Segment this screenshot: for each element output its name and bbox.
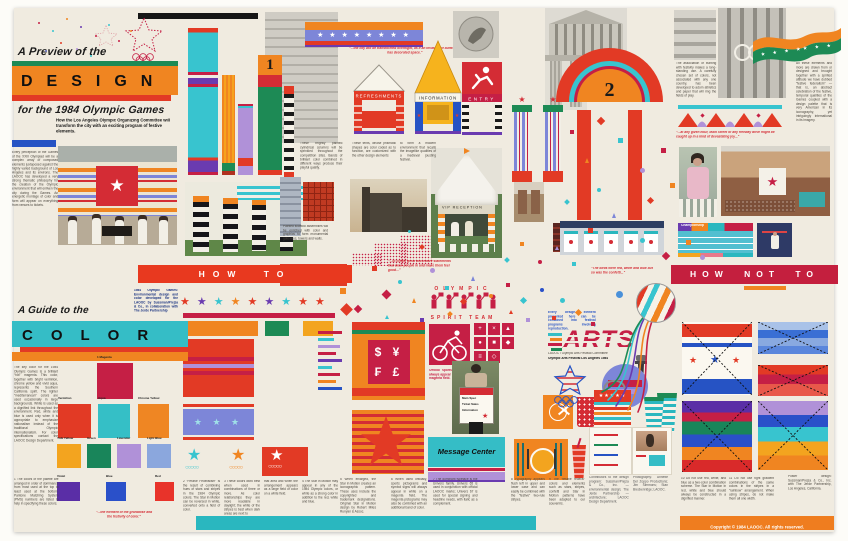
tagline: How the Los Angeles Olympic Organizing C…: [56, 118, 180, 135]
swatch-label: Lavender: [117, 437, 129, 440]
column-star-icon: ★: [543, 95, 563, 104]
sport-pictogram-tile: ●: [474, 337, 486, 349]
guest: [451, 222, 459, 236]
photo-discus-thrower: [453, 11, 499, 58]
row-star-icon: ★: [315, 296, 332, 308]
arch-number: 2: [605, 79, 615, 101]
pins-card: [589, 427, 632, 475]
palette-swatch: Yolk Yellow: [57, 437, 81, 468]
sign-header: [460, 388, 493, 395]
mini-bar: [318, 373, 340, 376]
poster-page: A Preview of the DESIGN for the 1984 Oly…: [0, 0, 848, 541]
how-to-banner: HOW TO: [138, 265, 352, 283]
column-green-shaft: [258, 87, 282, 170]
star-rings-sketch-icon: [546, 364, 594, 408]
target-dot: [589, 240, 593, 244]
swatch-color-block: [138, 404, 169, 438]
girl-dress: [687, 167, 709, 199]
target-dot: [649, 240, 653, 244]
star-row: ★★★★★★★★★: [180, 295, 345, 311]
row-star-icon: ★: [264, 296, 281, 308]
knife-icon: [554, 449, 556, 469]
photo-sign-holder: Main Spec Ticket Sales Information ★: [452, 361, 499, 434]
caption-typeface: 7 The dominant typeface is the Univers f…: [433, 478, 478, 506]
speed-bar: [551, 348, 562, 351]
white-chairs: [439, 244, 495, 252]
how-not-to-label: HOW NOT TO: [671, 265, 838, 284]
color-title: COLOR: [12, 321, 188, 344]
swatch-label: Light Blue: [147, 437, 159, 440]
band-field: ★ ★ ★: [183, 409, 254, 435]
row-star-icon: ★: [214, 296, 231, 308]
striped-field-example: [183, 339, 254, 397]
sign-orange-base: [352, 396, 425, 400]
how-not-to-underline: [744, 286, 786, 290]
message-center-sign: Message Center: [428, 437, 505, 481]
column-top-stripe-aqua: [238, 106, 253, 108]
spirit-bottom-label: SPIRIT TEAM: [424, 315, 502, 321]
swatch-label: Aqua: [98, 397, 114, 400]
caption-dont-red-white-blue: 10 Do not use red, white, and blue as a …: [681, 477, 726, 501]
column-base: [543, 171, 563, 182]
photo-sky: [58, 146, 177, 162]
swatch-color-block: [98, 404, 130, 438]
sign-line: Information: [462, 409, 478, 412]
star-column: ★: [543, 98, 563, 182]
lane-line: [678, 237, 753, 238]
photo-band-performance: ★: [58, 146, 177, 245]
subtitle: for the 1984 Olympic Games: [17, 104, 165, 116]
championship-label: Championship: [681, 224, 704, 227]
color-block-green: [265, 321, 289, 336]
entry-sign-label: ENTRY: [468, 96, 496, 101]
palette-swatch: Lavender: [117, 437, 141, 468]
post-star-icon: ★: [417, 113, 422, 119]
lifter-head: [773, 232, 777, 236]
mini-bar: [318, 352, 336, 355]
sport-pictogram-tile: +: [474, 323, 486, 335]
palette-swatch: Blue: [106, 475, 126, 501]
tent-column: [438, 214, 445, 244]
caption-star-colors: 4 The Star in Motion may appear in any o…: [302, 480, 338, 504]
intro-column: Every perception of the Games of the XXI…: [12, 151, 58, 208]
banner-orange-stripe: [305, 22, 423, 30]
crossout-x-icon: [682, 322, 752, 395]
refreshments-sign-label: REFRESHMENTS: [356, 94, 403, 99]
stars-in-motion-pattern: [352, 410, 424, 474]
column-shaft: [514, 112, 530, 171]
variant-star-icon: ★: [187, 445, 201, 465]
ruin-column: [518, 190, 527, 214]
person-torso: [465, 373, 487, 388]
quote-grandiose: “...the element of the grandiose and the…: [96, 511, 152, 520]
festive-column-aqua: [188, 28, 218, 175]
palette-swatch: Chrome Yellow: [138, 397, 169, 438]
sign-line: Main Spec: [462, 397, 476, 400]
festive-column-orange: [222, 75, 235, 175]
message-center-field: Message Center: [428, 437, 505, 467]
crossout-x-icon: [758, 401, 828, 470]
building-silhouette: [370, 193, 402, 232]
column-red-band: [238, 158, 253, 166]
vip-banner: VIP RECEPTION: [438, 205, 495, 214]
variant-star-icon: ★: [231, 445, 245, 465]
photo-venue-hills: ★: [721, 146, 830, 216]
speed-bar: [548, 333, 562, 336]
target-tent: [644, 231, 658, 252]
preview-eyebrow: A Preview of the: [17, 46, 107, 58]
arch-left-leg: [577, 110, 591, 220]
cycling-pictogram: [429, 324, 470, 365]
row-star-icon: ★: [248, 296, 265, 308]
column-capital: [543, 105, 563, 112]
sign-star-icon: ★: [482, 412, 488, 420]
photo-weightlifter: [757, 223, 792, 257]
sport-pictogram-tile: ×: [488, 323, 500, 335]
fork-icon: [527, 449, 529, 469]
information-sign-label: INFORMATION: [419, 96, 457, 101]
color-banner: COLOR: [12, 321, 188, 347]
star-variant-red-field: ★ ○○○○○: [262, 447, 308, 476]
guest: [465, 221, 473, 236]
swatch-label: Violet: [57, 475, 69, 478]
photo-swimming-championship: Championship: [678, 223, 753, 257]
bottom-cyan-bar: [196, 516, 536, 530]
band-stars: ★ ★ ★: [194, 417, 243, 427]
sign-magenta-rule: [428, 468, 505, 471]
photo-vip-tent: VIP RECEPTION: [431, 148, 502, 258]
column-base: [512, 171, 532, 182]
swatch-label: Green: [87, 437, 99, 440]
column-green-band: [222, 163, 235, 171]
swatch-label: 1 Magenta: [97, 356, 115, 359]
tent-column: [488, 214, 495, 244]
field-stripe: [183, 364, 254, 368]
mini-bar: [318, 359, 342, 362]
brochure-photo: [632, 427, 672, 475]
palette-swatch: 1 Magenta: [97, 356, 133, 399]
kiosk-refreshments: REFRESHMENTS: [352, 63, 406, 137]
swatch-label: Red: [155, 475, 165, 478]
target-dot: [569, 240, 573, 244]
swatch-color-block: [147, 444, 171, 468]
mini-bar: [318, 366, 332, 369]
girl-face: [693, 158, 702, 166]
dont-example-rainbow-dark: [682, 401, 752, 472]
how-to-label: HOW TO: [138, 265, 352, 283]
caption-palette-order: 1 The colors of the palette are arranged…: [14, 478, 59, 506]
dont-example-reds: [758, 365, 828, 396]
speed-bar: [550, 338, 562, 341]
star-variant-orange: ★ ○○○○○: [227, 447, 261, 476]
dont-example-rainbow-light: [758, 401, 828, 470]
credits-photography: Photography: Annette Del Zoppo Productio…: [633, 476, 668, 492]
brochure-figure: [646, 434, 654, 447]
ruin-column: [531, 190, 540, 214]
dashed-column-shaft: [284, 94, 294, 172]
caption-pictogram-use: 6 When used officially, sports pictogram…: [391, 478, 427, 511]
tent-flag: [464, 148, 470, 154]
caption-dont-rainbow: 11 Do not use tight gradient combination…: [729, 477, 774, 501]
mini-bar: [318, 338, 334, 341]
brochure-red-rule: [636, 455, 646, 457]
photo-city-street: [674, 10, 716, 60]
design-title: DESIGN: [12, 66, 178, 91]
bw-striped-column: [193, 196, 209, 252]
kiosk-entry: ENTRY: [461, 61, 503, 138]
variant-rings-icon: ○○○○○: [185, 465, 198, 471]
crossout-x-icon: [758, 322, 828, 354]
variant-rings-icon: ○○○○○: [229, 465, 242, 471]
target-tent: [564, 231, 578, 252]
target-tent: [624, 231, 638, 252]
banner-star-band: ★ ★ ★ ★ ★ ★ ★ ★: [305, 30, 423, 41]
copyright-text: Copyright © 1984 LAOOC. All rights reser…: [710, 523, 804, 533]
blue-bar: [12, 140, 56, 147]
building-tower: [362, 187, 370, 232]
caption-souvenirs: 9 The “festive federal” colors and eleme…: [549, 478, 585, 506]
swatch-color-block: [97, 363, 133, 399]
sport-pictogram-tile: ◆: [502, 337, 514, 349]
target-dot: [609, 240, 613, 244]
caption-festive-federalism: All these elements and more are drawn fr…: [796, 62, 832, 123]
banner-stars: ★ ★ ★ ★ ★ ★ ★ ★: [317, 32, 411, 39]
design-banner-red-stripe: [12, 95, 171, 101]
swatch-label: Blue: [106, 475, 116, 478]
swatch-color-block: [117, 444, 141, 468]
star-band-example: ★ ★ ★: [183, 404, 254, 440]
caption-festive-federalism-stars: 2 “Festive Federalism” is the result of …: [183, 480, 220, 513]
column-number: 1: [266, 57, 274, 73]
design-banner: DESIGN: [12, 66, 178, 95]
musician: [68, 220, 77, 244]
palette-swatch: Light Blue: [147, 437, 171, 468]
caption-festival: to form a modern environment that recall…: [400, 142, 436, 162]
banner-star-icon: ★: [109, 176, 124, 195]
vip-label: VIP RECEPTION: [442, 206, 483, 210]
mini-bar: [318, 387, 342, 390]
quote-birds: “The birds were red, white and blue but …: [591, 267, 657, 276]
swatch-color-block: [87, 444, 111, 468]
swatch-color-block: [155, 482, 174, 501]
row-star-icon: ★: [231, 296, 248, 308]
photo-archery-targets: [560, 221, 664, 255]
person-head: [471, 364, 481, 373]
maraca-ball: [636, 283, 676, 323]
caption-scaffold: Painted scaffold assemblies will be enri…: [283, 225, 328, 241]
pin-green: [594, 444, 618, 446]
sign-magenta-square: $ ¥ ₣ £: [368, 340, 410, 384]
mini-bar: [318, 345, 340, 348]
pool-header-band: Championship: [678, 223, 753, 231]
palette-swatch: Aqua: [98, 397, 130, 438]
swatch-color-block: [58, 404, 91, 438]
palette-swatch: Red: [155, 475, 174, 501]
currency-symbols-top: $ ¥: [368, 342, 410, 362]
guide-eyebrow: A Guide to the: [17, 305, 89, 316]
spirit-figures-icon: [424, 292, 502, 310]
currency-symbols-bottom: ₣ £: [368, 362, 410, 382]
sign-red-band: [352, 388, 425, 396]
pool-footer-band: [678, 253, 753, 257]
building-low: [402, 207, 427, 232]
how-not-to-banner: HOW NOT TO: [671, 265, 838, 284]
mini-bar: [318, 331, 342, 334]
scaffold-grid: [303, 182, 334, 221]
crimson-rule: [183, 313, 335, 318]
caption-bunting: The association of bunting with festivit…: [676, 62, 716, 99]
caption-color-combinations-cont: that area and when the arrangement appea…: [264, 480, 298, 496]
venue-star-icon: ★: [767, 174, 779, 189]
photo-columns-landscape: [514, 182, 544, 222]
caption-color-combinations: 3 These colors work best when used in co…: [224, 480, 260, 517]
band-stripe-red: [183, 437, 254, 440]
target-tent: [604, 231, 618, 252]
star-column: ★: [512, 98, 532, 182]
lane-line: [678, 249, 753, 250]
column-capital: [512, 105, 532, 112]
pin-red: [594, 434, 618, 436]
band-stripe-red: [183, 404, 254, 407]
brochure-cyan-block: [649, 455, 665, 466]
placemat-stripes-left: [517, 443, 527, 476]
swatch-label: Chrome Yellow: [138, 397, 154, 400]
row-star-icon: ★: [281, 296, 298, 308]
column-star-icon: ★: [512, 95, 532, 104]
olympic-spirit-team-logo: OLYMPIC SPIRIT TEAM: [424, 286, 502, 328]
row-star-icon: ★: [298, 296, 315, 308]
mini-bar: [318, 380, 336, 383]
post-star-icon: ★: [455, 113, 460, 119]
variant-star-icon: ★: [270, 446, 283, 464]
column-red-base: [258, 170, 282, 175]
venue-tents: [799, 192, 825, 207]
caption-tents: These tents, whose prismatic shapes are …: [352, 142, 396, 158]
column-number-cap: 1: [258, 55, 282, 75]
festive-column-dashed: [284, 86, 294, 178]
swatch-label: Vermilion: [58, 397, 75, 400]
target-tent: [584, 231, 598, 252]
tent-roof: [435, 153, 498, 205]
venue-star-wall: ★: [759, 168, 786, 195]
photo-girl: [679, 147, 717, 217]
swatch-label: Yolk Yellow: [57, 437, 69, 440]
lane-line: [678, 243, 753, 244]
swatch-color-block: [57, 482, 80, 501]
caption-columns: These brightly painted cylindrical colum…: [300, 142, 342, 170]
column-shaft: [545, 112, 561, 171]
speed-bar: [548, 343, 562, 346]
message-center-label: Message Center: [438, 447, 496, 456]
mini-bars-legend: [318, 331, 344, 395]
sport-pictogram-tile: ▲: [502, 323, 514, 335]
dashed-column-red-cap: [284, 86, 294, 94]
sign-red-band: [352, 322, 425, 330]
palette-swatch: Violet: [57, 475, 80, 501]
musician: [159, 220, 168, 244]
plate-icon: [530, 448, 556, 474]
crossout-x-icon: [758, 365, 828, 396]
arch-right-leg: [628, 110, 642, 220]
variant-rings-icon: ○○○○○: [268, 464, 281, 470]
column-red-band: [258, 75, 282, 87]
pin-red2: [594, 464, 618, 466]
white-fence: [679, 199, 717, 217]
color-block-orange: [188, 321, 258, 336]
handheld-sign: Main Spec Ticket Sales Information ★: [459, 387, 494, 424]
row-star-icon: ★: [197, 296, 214, 308]
sport-pictogram-tile: ■: [488, 337, 500, 349]
column-red-base: [222, 171, 235, 175]
dont-example-lightblue: [758, 322, 828, 354]
bw-striped-column: [252, 200, 266, 251]
copyright-bar: Copyright © 1984 LAOOC. All rights reser…: [680, 516, 834, 530]
currency-exchange-sign: $ ¥ ₣ £: [352, 322, 425, 400]
color-intro: The key color for the 1984 Olympic Games…: [14, 366, 58, 443]
how-to-credit: 1984 Olympic Games: Environmental design…: [134, 289, 178, 313]
dont-example-stars: ★ ★ ★: [682, 322, 752, 395]
field-stripe: [183, 357, 254, 361]
targets-sky-band: [560, 221, 664, 228]
quote-main-street: “...at any given hour, Main Street or an…: [676, 131, 781, 140]
field-stripe: [183, 371, 254, 375]
gateway-arch: 2: [556, 46, 667, 220]
temple-pediment: [549, 10, 623, 24]
credits-contributors: Contributors to the design program: Suss…: [589, 476, 629, 504]
palette-swatch: Vermilion: [58, 397, 91, 438]
placemat-graphic: [514, 439, 568, 480]
pin-blue: [594, 454, 618, 456]
person-legs: [469, 422, 483, 434]
music-stand: [102, 226, 132, 236]
lifter-body: [771, 235, 779, 249]
crossout-x-icon: [682, 401, 752, 472]
quote-decorative: “...to create great decorative statement…: [388, 260, 452, 273]
caption-star-enlarged: 5 When enlarged, the Star in Motion crea…: [340, 478, 376, 515]
poster-design-credit: Poster design: Sussman/Prejza & Co., Inc…: [788, 475, 831, 491]
target-dot: [629, 240, 633, 244]
palette-swatch: Green: [87, 437, 111, 468]
row-star-icon: ★: [180, 296, 197, 308]
photo-red-scaffold: [303, 182, 334, 221]
venue-crowd: [725, 200, 795, 212]
star-banner-on-wall: ★: [96, 166, 138, 206]
festive-column-lavender: [238, 104, 253, 175]
festive-frieze: [678, 105, 782, 130]
stars-and-stripes-banner: ★ ★ ★ ★ ★ ★ ★ ★: [305, 22, 423, 47]
swatch-color-block: [57, 444, 81, 468]
placemat-stripes-right: [555, 443, 565, 476]
festive-column-numbered: 1: [258, 55, 282, 175]
sign-line: Ticket Sales: [462, 403, 479, 406]
bw-striped-column: [223, 198, 238, 252]
star-variant-aqua: ★ ○○○○○: [181, 447, 223, 476]
musician: [138, 219, 147, 244]
musician: [92, 218, 101, 244]
swatch-color-block: [106, 482, 126, 501]
caption-typography: 8 Typography appears flush left in upper…: [511, 478, 545, 502]
photo-building-dusk: [350, 179, 427, 232]
